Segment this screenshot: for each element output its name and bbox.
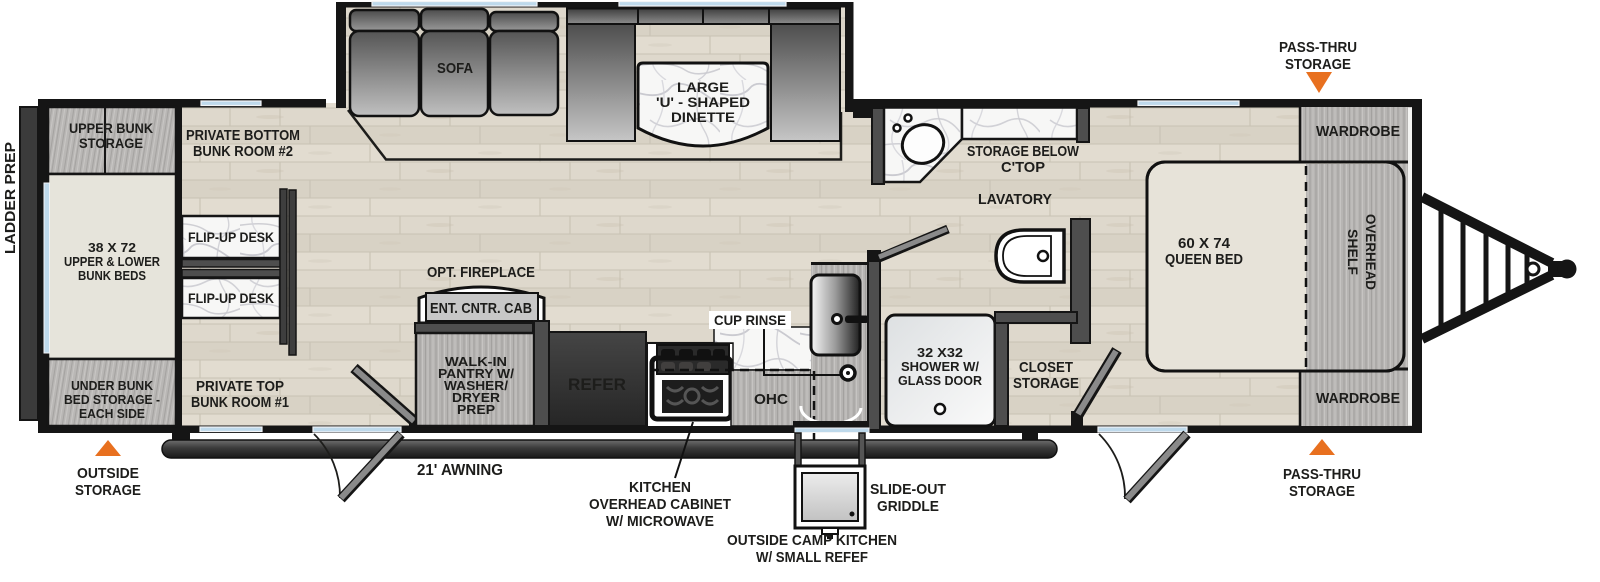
svg-text:BUNK BEDS: BUNK BEDS bbox=[78, 268, 146, 283]
svg-text:STORAGE: STORAGE bbox=[1285, 56, 1351, 73]
svg-text:PASS-THRU: PASS-THRU bbox=[1283, 466, 1361, 483]
svg-text:STORAGE: STORAGE bbox=[1289, 483, 1355, 500]
svg-text:REFER: REFER bbox=[568, 375, 626, 394]
svg-text:FLIP-UP DESK: FLIP-UP DESK bbox=[188, 290, 274, 306]
svg-text:FLIP-UP DESK: FLIP-UP DESK bbox=[188, 229, 274, 245]
svg-text:WARDROBE: WARDROBE bbox=[1316, 123, 1400, 140]
svg-text:STORAGE: STORAGE bbox=[75, 482, 141, 499]
svg-text:32 X32: 32 X32 bbox=[917, 345, 963, 360]
svg-text:SOFA: SOFA bbox=[437, 60, 473, 77]
svg-text:LAVATORY: LAVATORY bbox=[978, 191, 1052, 208]
svg-text:GRIDDLE: GRIDDLE bbox=[877, 498, 939, 515]
svg-text:ENT. CNTR. CAB: ENT. CNTR. CAB bbox=[430, 300, 532, 317]
svg-text:STORAGE: STORAGE bbox=[1013, 375, 1079, 392]
svg-text:OPT. FIREPLACE: OPT. FIREPLACE bbox=[427, 264, 535, 281]
svg-text:60 X 74: 60 X 74 bbox=[1178, 235, 1231, 252]
svg-text:OVERHEAD CABINET: OVERHEAD CABINET bbox=[589, 496, 731, 513]
svg-text:PRIVATE BOTTOM: PRIVATE BOTTOM bbox=[186, 127, 300, 144]
svg-text:PASS-THRU: PASS-THRU bbox=[1279, 39, 1357, 56]
svg-text:CUP RINSE: CUP RINSE bbox=[714, 312, 786, 328]
svg-text:BED STORAGE -: BED STORAGE - bbox=[64, 392, 160, 407]
svg-text:STORAGE BELOW: STORAGE BELOW bbox=[967, 143, 1080, 160]
svg-text:OUTSIDE: OUTSIDE bbox=[77, 465, 139, 482]
svg-text:UNDER BUNK: UNDER BUNK bbox=[71, 378, 154, 393]
svg-text:DINETTE: DINETTE bbox=[671, 109, 735, 125]
svg-text:EACH SIDE: EACH SIDE bbox=[79, 406, 145, 421]
svg-text:OHC: OHC bbox=[754, 391, 788, 408]
svg-text:W/ SMALL REFEF: W/ SMALL REFEF bbox=[756, 549, 868, 566]
svg-text:GLASS DOOR: GLASS DOOR bbox=[898, 373, 983, 388]
svg-text:CLOSET: CLOSET bbox=[1019, 359, 1073, 376]
svg-text:BUNK ROOM #2: BUNK ROOM #2 bbox=[193, 143, 293, 160]
svg-text:WARDROBE: WARDROBE bbox=[1316, 390, 1400, 407]
svg-text:C'TOP: C'TOP bbox=[1001, 159, 1045, 176]
svg-text:OVERHEAD: OVERHEAD bbox=[1363, 214, 1379, 290]
svg-text:STORAGE: STORAGE bbox=[79, 135, 143, 151]
svg-text:SHELF: SHELF bbox=[1345, 229, 1361, 275]
svg-text:PREP: PREP bbox=[457, 402, 495, 417]
svg-text:W/ MICROWAVE: W/ MICROWAVE bbox=[606, 513, 714, 530]
svg-text:SLIDE-OUT: SLIDE-OUT bbox=[870, 481, 946, 498]
svg-text:LADDER PREP: LADDER PREP bbox=[2, 142, 19, 254]
svg-text:38 X 72: 38 X 72 bbox=[88, 240, 136, 255]
svg-text:UPPER & LOWER: UPPER & LOWER bbox=[64, 254, 161, 269]
svg-text:LARGE: LARGE bbox=[677, 79, 729, 95]
svg-text:KITCHEN: KITCHEN bbox=[629, 479, 691, 496]
svg-text:BUNK ROOM #1: BUNK ROOM #1 bbox=[191, 394, 289, 411]
svg-text:21' AWNING: 21' AWNING bbox=[417, 462, 503, 479]
svg-text:QUEEN BED: QUEEN BED bbox=[1165, 251, 1243, 268]
svg-text:'U' - SHAPED: 'U' - SHAPED bbox=[656, 94, 750, 110]
svg-text:OUTSIDE CAMP KITCHEN: OUTSIDE CAMP KITCHEN bbox=[727, 532, 897, 549]
svg-text:UPPER BUNK: UPPER BUNK bbox=[69, 120, 153, 136]
svg-text:PRIVATE TOP: PRIVATE TOP bbox=[196, 378, 284, 395]
svg-text:SHOWER W/: SHOWER W/ bbox=[901, 359, 979, 374]
